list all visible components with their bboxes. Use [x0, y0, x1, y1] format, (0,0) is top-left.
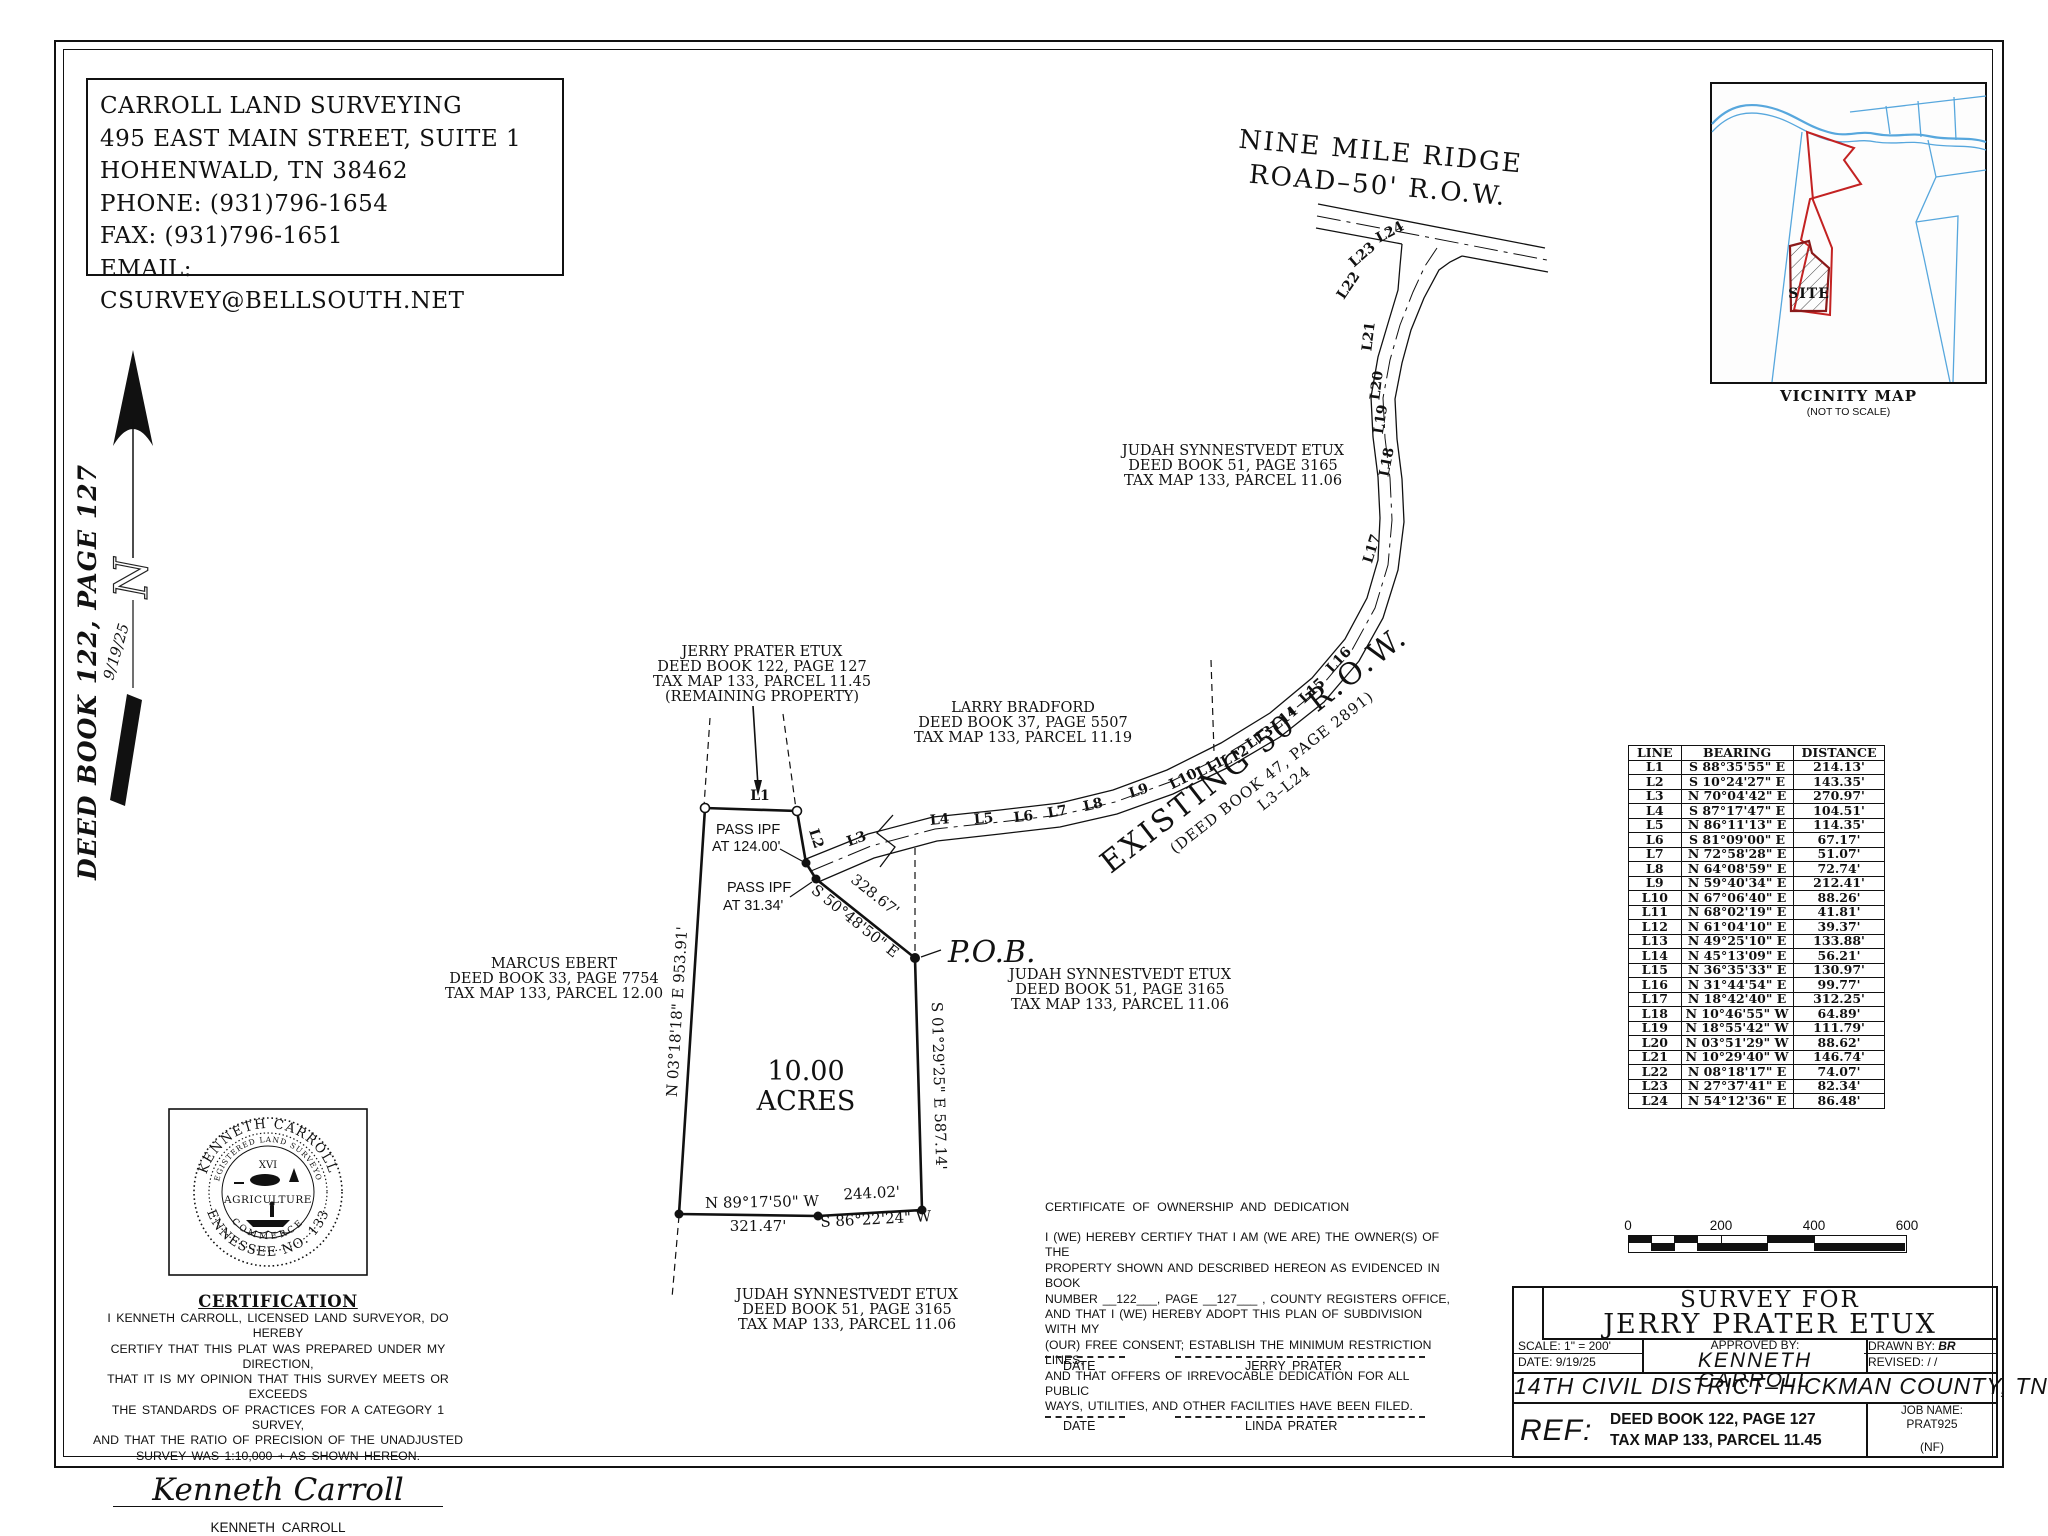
- dedication-line: WAYS, UTILITIES, AND OTHER FACILITIES HA…: [1045, 1399, 1457, 1414]
- dashed-line: [783, 714, 796, 809]
- pass-ipf-2-line1: PASS IPF: [727, 880, 791, 896]
- line-table-cell: 111.79': [1793, 1021, 1885, 1036]
- title-block-info-row: SCALE: 1" = 200' DATE: 9/19/25 APPROVED …: [1514, 1338, 1996, 1374]
- date-line: [1045, 1356, 1125, 1358]
- segment-label: L18: [1376, 446, 1397, 478]
- top-road-edge-lower-right: [1462, 256, 1548, 272]
- line-table-cell: L14: [1629, 949, 1682, 964]
- date-line: [1045, 1416, 1125, 1418]
- line-table-cell: L10: [1629, 891, 1682, 906]
- line-table-cell: N 68°02'19" E: [1681, 905, 1793, 920]
- line-table-cell: L4: [1629, 804, 1682, 819]
- ref-lines: DEED BOOK 122, PAGE 127 TAX MAP 133, PAR…: [1610, 1409, 1822, 1451]
- line-table-row: L4S 87°17'47" E104.51': [1629, 804, 1885, 819]
- line-table-row: L6S 81°09'00" E67.17': [1629, 833, 1885, 848]
- line-table-cell: 41.81': [1793, 905, 1885, 920]
- certification-line: SURVEY WAS 1:10,000 + AS SHOWN HEREON.: [88, 1449, 468, 1464]
- date-label: DATE: [1063, 1419, 1095, 1433]
- road-edge-upper: [806, 244, 1402, 859]
- approved-cell: APPROVED BY: KENNETH CARROLL: [1642, 1338, 1868, 1372]
- ref-line2: TAX MAP 133, PARCEL 11.45: [1610, 1430, 1822, 1451]
- leader-line: [921, 950, 941, 957]
- segment-label: L22: [1334, 269, 1364, 302]
- line-table-cell: L2: [1629, 775, 1682, 790]
- line-table-header: BEARING: [1681, 746, 1793, 761]
- line-table-cell: 99.77': [1793, 978, 1885, 993]
- segment-label: L20: [1367, 370, 1386, 401]
- line-table-cell: 114.35': [1793, 818, 1885, 833]
- line-table-cell: N 03°51'29" W: [1681, 1036, 1793, 1051]
- segment-label: L5: [973, 810, 994, 828]
- owner-label-judah-bottom: JUDAH SYNNESTVEDT ETUX DEED BOOK 51, PAG…: [734, 1287, 959, 1333]
- certification-line: I KENNETH CARROLL, LICENSED LAND SURVEYO…: [88, 1311, 468, 1342]
- line-table-row: L18N 10°46'55" W64.89': [1629, 1007, 1885, 1022]
- reference-row: REF: DEED BOOK 122, PAGE 127 TAX MAP 133…: [1514, 1402, 1996, 1456]
- date-value: DATE: 9/19/25: [1514, 1354, 1642, 1370]
- line-table-cell: N 10°46'55" W: [1681, 1007, 1793, 1022]
- revised-label: REVISED:: [1868, 1355, 1924, 1369]
- line-table-row: L13N 49°25'10" E133.88': [1629, 934, 1885, 949]
- certification-body: I KENNETH CARROLL, LICENSED LAND SURVEYO…: [88, 1311, 468, 1464]
- dedication-line: NUMBER __122___, PAGE __127___ , COUNTY …: [1045, 1292, 1457, 1307]
- line-table-header-row: LINE BEARING DISTANCE: [1629, 746, 1885, 761]
- surveyor-signature-area: Kenneth Carroll: [88, 1478, 468, 1518]
- owner-line: JUDAH SYNNESTVEDT ETUX: [1120, 443, 1345, 459]
- line-table-header: DISTANCE: [1793, 746, 1885, 761]
- line-table-cell: 74.07': [1793, 1065, 1885, 1080]
- dedication-block: CERTIFICATE OF OWNERSHIP AND DEDICATION …: [1045, 1200, 1457, 1415]
- line-table-row: L23N 27°37'41" E82.34': [1629, 1079, 1885, 1094]
- line-table-cell: N 61°04'10" E: [1681, 920, 1793, 935]
- pob-label: P.O.B.: [947, 935, 1036, 970]
- line-table-row: L1S 88°35'55" E214.13': [1629, 760, 1885, 775]
- north-letter: N: [104, 556, 158, 599]
- line-table-row: L8N 64°08'59" E72.74': [1629, 862, 1885, 877]
- dashed-line: [1211, 660, 1214, 752]
- line-table-cell: L23: [1629, 1079, 1682, 1094]
- owner-signature-line: [1175, 1356, 1425, 1358]
- line-table-cell: S 10°24'27" E: [1681, 775, 1793, 790]
- dedication-title: CERTIFICATE OF OWNERSHIP AND DEDICATION: [1045, 1200, 1457, 1214]
- line-table-cell: N 08°18'17" E: [1681, 1065, 1793, 1080]
- line-table-header: LINE: [1629, 746, 1682, 761]
- acreage-line2: ACRES: [756, 1086, 856, 1117]
- vicinity-caption: VICINITY MAP (NOT TO SCALE): [1710, 387, 1987, 418]
- certification-title: CERTIFICATION: [88, 1292, 468, 1311]
- owner2-name: LINDA PRATER: [1245, 1419, 1337, 1433]
- line-table-cell: N 31°44'54" E: [1681, 978, 1793, 993]
- line-table-cell: L24: [1629, 1094, 1682, 1109]
- drawn-revised-cell: DRAWN BY: BR REVISED: / /: [1864, 1338, 1996, 1372]
- line-table-cell: 56.21': [1793, 949, 1885, 964]
- owner-line: JUDAH SYNNESTVEDT ETUX: [1007, 967, 1232, 983]
- scale-tick: 0: [1608, 1218, 1648, 1233]
- line-table-cell: 51.07': [1793, 847, 1885, 862]
- line-table-cell: 64.89': [1793, 1007, 1885, 1022]
- line-table-cell: N 18°55'42" W: [1681, 1021, 1793, 1036]
- acreage-line1: 10.00: [767, 1056, 844, 1087]
- revised: REVISED: / /: [1864, 1354, 1996, 1370]
- road-name: NINE MILE RIDGE ROAD–50' R.O.W.: [1235, 125, 1524, 214]
- survey-date: 9/19/25: [100, 621, 133, 682]
- line-table-cell: N 18°42'40" E: [1681, 992, 1793, 1007]
- client-name: JERRY PRATER ETUX: [1544, 1312, 1996, 1337]
- deed-ref-vertical: DEED BOOK 122, PAGE 127: [73, 464, 102, 881]
- owner-line: TAX MAP 133, PARCEL 11.45: [653, 674, 871, 690]
- segment-label: L17: [1360, 532, 1384, 565]
- line-table-cell: L18: [1629, 1007, 1682, 1022]
- scale-bar: [1628, 1235, 1907, 1253]
- line-table-cell: N 59°40'34" E: [1681, 876, 1793, 891]
- surveyor-seal: KENNETH CARROLL TENNESSEE NO. 1335 REGIS…: [168, 1108, 368, 1276]
- line-table-cell: N 36°35'33" E: [1681, 963, 1793, 978]
- line-table-cell: 212.41': [1793, 876, 1885, 891]
- owner-line: TAX MAP 133, PARCEL 11.06: [738, 1317, 956, 1333]
- line-table-cell: L8: [1629, 862, 1682, 877]
- line-table-cell: 143.35': [1793, 775, 1885, 790]
- line-table-cell: N 54°12'36" E: [1681, 1094, 1793, 1109]
- line-table-cell: L1: [1629, 760, 1682, 775]
- owner-line: DEED BOOK 122, PAGE 127: [657, 659, 866, 675]
- line-table-row: L17N 18°42'40" E312.25': [1629, 992, 1885, 1007]
- job-cell: JOB NAME: PRAT925 (NF): [1866, 1402, 1996, 1456]
- line-table-row: L7N 72°58'28" E51.07': [1629, 847, 1885, 862]
- owner2-signature-row: DATE LINDA PRATER: [1045, 1416, 1457, 1442]
- line-table-cell: 39.37': [1793, 920, 1885, 935]
- owner-line: TAX MAP 133, PARCEL 11.19: [914, 730, 1132, 746]
- line-table-cell: N 27°37'41" E: [1681, 1079, 1793, 1094]
- line-table-cell: L3: [1629, 789, 1682, 804]
- job-value: PRAT925: [1868, 1417, 1996, 1431]
- drawn-value: BR: [1938, 1339, 1955, 1353]
- corner-monuments: [675, 804, 927, 1221]
- segment-label: L7: [1046, 802, 1068, 821]
- line-table-cell: L9: [1629, 876, 1682, 891]
- segment-label: L1: [750, 788, 770, 804]
- existing-row-label: EXISTING 50' R.O.W. (DEED BOOK 47, PAGE …: [1094, 619, 1440, 912]
- owner-line: TAX MAP 133, PARCEL 12.00: [445, 986, 663, 1002]
- owner-line: DEED BOOK 33, PAGE 7754: [449, 971, 658, 987]
- vicinity-border: [1711, 83, 1986, 383]
- certification-line: THE STANDARDS OF PRACTICES FOR A CATEGOR…: [88, 1403, 468, 1434]
- leader-line: [780, 849, 802, 861]
- dashed-line: [672, 1216, 679, 1298]
- line-table-cell: N 45°13'09" E: [1681, 949, 1793, 964]
- dedication-line: PROPERTY SHOWN AND DESCRIBED HEREON AS E…: [1045, 1261, 1457, 1292]
- line-table-cell: L12: [1629, 920, 1682, 935]
- top-road-edge-upper: [1318, 204, 1545, 248]
- line-table-cell: N 70°04'42" E: [1681, 789, 1793, 804]
- dashed-line: [704, 718, 710, 806]
- scale-tick: 200: [1701, 1218, 1741, 1233]
- dedication-line: I (WE) HEREBY CERTIFY THAT I AM (WE ARE)…: [1045, 1230, 1457, 1261]
- segment-label: L2: [805, 827, 826, 851]
- owner-label-jerry-prater: JERRY PRATER ETUX DEED BOOK 122, PAGE 12…: [653, 644, 871, 705]
- certification-line: CERTIFY THAT THIS PLAT WAS PREPARED UNDE…: [88, 1342, 468, 1373]
- owner-line: DEED BOOK 51, PAGE 3165: [1015, 982, 1224, 998]
- owner-label-judah-top: JUDAH SYNNESTVEDT ETUX DEED BOOK 51, PAG…: [1120, 443, 1345, 489]
- owner-line: TAX MAP 133, PARCEL 11.06: [1011, 997, 1229, 1013]
- vicinity-site-label: SITE: [1788, 286, 1830, 302]
- line-table-row: L16N 31°44'54" E99.77': [1629, 978, 1885, 993]
- line-table-row: L21N 10°29'40" W146.74': [1629, 1050, 1885, 1065]
- line-table-row: L11N 68°02'19" E41.81': [1629, 905, 1885, 920]
- line-table-body: L1S 88°35'55" E214.13'L2S 10°24'27" E143…: [1629, 760, 1885, 1108]
- south-distance-2: 244.02': [843, 1183, 900, 1204]
- line-table-row: L12N 61°04'10" E39.37': [1629, 920, 1885, 935]
- owner-label-marcus-ebert: MARCUS EBERT DEED BOOK 33, PAGE 7754 TAX…: [445, 956, 663, 1002]
- south-bearing-2: S 86°22'24" W: [820, 1207, 932, 1231]
- line-table-cell: 270.97': [1793, 789, 1885, 804]
- surveyor-name: KENNETH CARROLL: [88, 1520, 468, 1535]
- line-table-cell: L21: [1629, 1050, 1682, 1065]
- line-table-cell: L5: [1629, 818, 1682, 833]
- scale-date-cell: SCALE: 1" = 200' DATE: 9/19/25: [1514, 1338, 1642, 1372]
- scale-tick: 600: [1887, 1218, 1927, 1233]
- segment-label: L23: [1346, 239, 1379, 270]
- line-table-cell: 104.51': [1793, 804, 1885, 819]
- line-table-cell: L15: [1629, 963, 1682, 978]
- segment-labels: L1 L2 L3 L4 L5 L6 L7 L8 L9 L10 L11 L12 L…: [750, 218, 1407, 850]
- scale-tick: 400: [1794, 1218, 1834, 1233]
- owner-line: JERRY PRATER ETUX: [680, 644, 844, 660]
- south-distance-1: 321.47': [730, 1217, 787, 1235]
- segment-label: L3: [845, 828, 869, 850]
- line-table-cell: S 88°35'55" E: [1681, 760, 1793, 775]
- line-table-row: L9N 59°40'34" E212.41': [1629, 876, 1885, 891]
- line-table-cell: 86.48': [1793, 1094, 1885, 1109]
- pass-ipf-1-line1: PASS IPF: [716, 822, 780, 838]
- job-label: JOB NAME:: [1868, 1405, 1996, 1417]
- line-table-cell: 312.25': [1793, 992, 1885, 1007]
- graphic-scale: 0 200 400 600: [1628, 1218, 1909, 1258]
- segment-label: L6: [1013, 808, 1034, 826]
- line-table-cell: N 67°06'40" E: [1681, 891, 1793, 906]
- scale-ticks: 0 200 400 600: [1628, 1218, 1909, 1234]
- line-table-row: L24N 54°12'36" E86.48': [1629, 1094, 1885, 1109]
- line-table-row: L5N 86°11'13" E114.35': [1629, 818, 1885, 833]
- line-table-row: L15N 36°35'33" E130.97': [1629, 963, 1885, 978]
- segment-label: L8: [1082, 795, 1105, 815]
- date-label: DATE: [1063, 1359, 1095, 1373]
- owner1-signature-row: DATE JERRY PRATER: [1045, 1356, 1457, 1382]
- line-table-cell: L16: [1629, 978, 1682, 993]
- vicinity-map: SITE: [1710, 82, 1987, 384]
- vicinity-subtitle: (NOT TO SCALE): [1710, 406, 1987, 418]
- owner-line: TAX MAP 133, PARCEL 11.06: [1124, 473, 1342, 489]
- label-arrow: [753, 706, 758, 786]
- pass-ipf-2-line2: AT 31.34': [723, 898, 784, 914]
- line-table-row: L14N 45°13'09" E56.21': [1629, 949, 1885, 964]
- segment-label: L21: [1359, 321, 1378, 352]
- seal-xvi: XVI: [259, 1160, 277, 1171]
- line-table-cell: 82.34': [1793, 1079, 1885, 1094]
- line-table-cell: L7: [1629, 847, 1682, 862]
- owner-line: LARRY BRADFORD: [951, 700, 1095, 716]
- ref-label: REF:: [1520, 1414, 1592, 1448]
- owner1-name: JERRY PRATER: [1245, 1359, 1342, 1373]
- line-table-cell: 146.74': [1793, 1050, 1885, 1065]
- owner-signature-line: [1175, 1416, 1425, 1418]
- line-table-cell: N 72°58'28" E: [1681, 847, 1793, 862]
- drawn-label: DRAWN BY:: [1868, 1339, 1935, 1353]
- line-table-cell: 72.74': [1793, 862, 1885, 877]
- owner-line: MARCUS EBERT: [491, 956, 618, 972]
- title-block: SURVEY FOR JERRY PRATER ETUX SCALE: 1" =…: [1512, 1286, 1998, 1458]
- segment-label: L19: [1371, 404, 1391, 435]
- line-table-cell: L11: [1629, 905, 1682, 920]
- vicinity-title: VICINITY MAP: [1710, 387, 1987, 405]
- ref-line1: DEED BOOK 122, PAGE 127: [1610, 1409, 1822, 1430]
- line-table-row: L2S 10°24'27" E143.35': [1629, 775, 1885, 790]
- line-table-row: L3N 70°04'42" E270.97': [1629, 789, 1885, 804]
- line-table-cell: N 10°29'40" W: [1681, 1050, 1793, 1065]
- scale-value: SCALE: 1" = 200': [1514, 1338, 1642, 1354]
- road-centerline: [811, 248, 1437, 871]
- line-table-cell: L20: [1629, 1036, 1682, 1051]
- existing-row-line1: EXISTING 50' R.O.W.: [1094, 619, 1415, 880]
- certification-line: AND THAT THE RATIO OF PRECISION OF THE U…: [88, 1433, 468, 1448]
- line-table-cell: N 64°08'59" E: [1681, 862, 1793, 877]
- line-table-cell: L17: [1629, 992, 1682, 1007]
- line-table-row: L22N 08°18'17" E74.07': [1629, 1065, 1885, 1080]
- road-break-symbol: [877, 815, 895, 867]
- line-table-cell: 67.17': [1793, 833, 1885, 848]
- certification-line: THAT IT IS MY OPINION THAT THIS SURVEY M…: [88, 1372, 468, 1403]
- line-table-row: L10N 67°06'40" E88.26': [1629, 891, 1885, 906]
- north-arrow: N 9/19/25 DEED BOOK 122, PAGE 127: [73, 350, 158, 881]
- title-block-header: SURVEY FOR JERRY PRATER ETUX: [1542, 1288, 1996, 1340]
- dedication-line: AND THAT I (WE) HEREBY ADOPT THIS PLAN O…: [1045, 1307, 1457, 1338]
- seal-agriculture: AGRICULTURE: [223, 1194, 312, 1206]
- owner-label-larry-bradford: LARRY BRADFORD DEED BOOK 37, PAGE 5507 T…: [914, 700, 1132, 746]
- line-table: LINE BEARING DISTANCE L1S 88°35'55" E214…: [1628, 745, 1885, 1109]
- pass-ipf-1-line2: AT 124.00': [712, 839, 781, 855]
- district-row: 14TH CIVIL DISTRICT–HICKMAN COUNTY, TN: [1514, 1372, 1996, 1404]
- line-table-cell: 88.26': [1793, 891, 1885, 906]
- line-table-cell: 88.62': [1793, 1036, 1885, 1051]
- owner-line: (REMAINING PROPERTY): [665, 689, 859, 705]
- line-table-cell: 214.13': [1793, 760, 1885, 775]
- surveyor-signature: Kenneth Carroll: [88, 1472, 468, 1508]
- line-table-cell: N 86°11'13" E: [1681, 818, 1793, 833]
- line-table-cell: L19: [1629, 1021, 1682, 1036]
- line-table-cell: N 49°25'10" E: [1681, 934, 1793, 949]
- owner-line: DEED BOOK 51, PAGE 3165: [742, 1302, 951, 1318]
- north-arrow-tail: [110, 694, 142, 806]
- job-note: (NF): [1868, 1440, 1996, 1454]
- line-table-cell: L13: [1629, 934, 1682, 949]
- east-boundary-bearing: S 01°29'25" E 587.14': [928, 1002, 950, 1170]
- dedication-body: I (WE) HEREBY CERTIFY THAT I AM (WE ARE)…: [1045, 1230, 1457, 1415]
- line-table-cell: 133.88': [1793, 934, 1885, 949]
- line-table-cell: 130.97': [1793, 963, 1885, 978]
- line-table-row: L20N 03°51'29" W88.62': [1629, 1036, 1885, 1051]
- owner-line: JUDAH SYNNESTVEDT ETUX: [734, 1287, 959, 1303]
- owner-line: DEED BOOK 51, PAGE 3165: [1128, 458, 1337, 474]
- drawn-by: DRAWN BY: BR: [1864, 1338, 1996, 1354]
- south-bearing-1: N 89°17'50" W: [705, 1192, 820, 1212]
- owner-line: DEED BOOK 37, PAGE 5507: [918, 715, 1127, 731]
- line-table-cell: S 81°09'00" E: [1681, 833, 1793, 848]
- survey-plat-page: CARROLL LAND SURVEYING 495 EAST MAIN STR…: [0, 0, 2048, 1536]
- line-table-row: L19N 18°55'42" W111.79': [1629, 1021, 1885, 1036]
- certification-block: CERTIFICATION I KENNETH CARROLL, LICENSE…: [88, 1292, 468, 1536]
- revised-value: / /: [1927, 1355, 1937, 1369]
- segment-label: L4: [929, 811, 950, 829]
- line-table-cell: S 87°17'47" E: [1681, 804, 1793, 819]
- owner-label-judah-mid: JUDAH SYNNESTVEDT ETUX DEED BOOK 51, PAG…: [1007, 967, 1232, 1013]
- line-table-cell: L22: [1629, 1065, 1682, 1080]
- line-table-cell: L6: [1629, 833, 1682, 848]
- parcel-outline: [679, 808, 922, 1216]
